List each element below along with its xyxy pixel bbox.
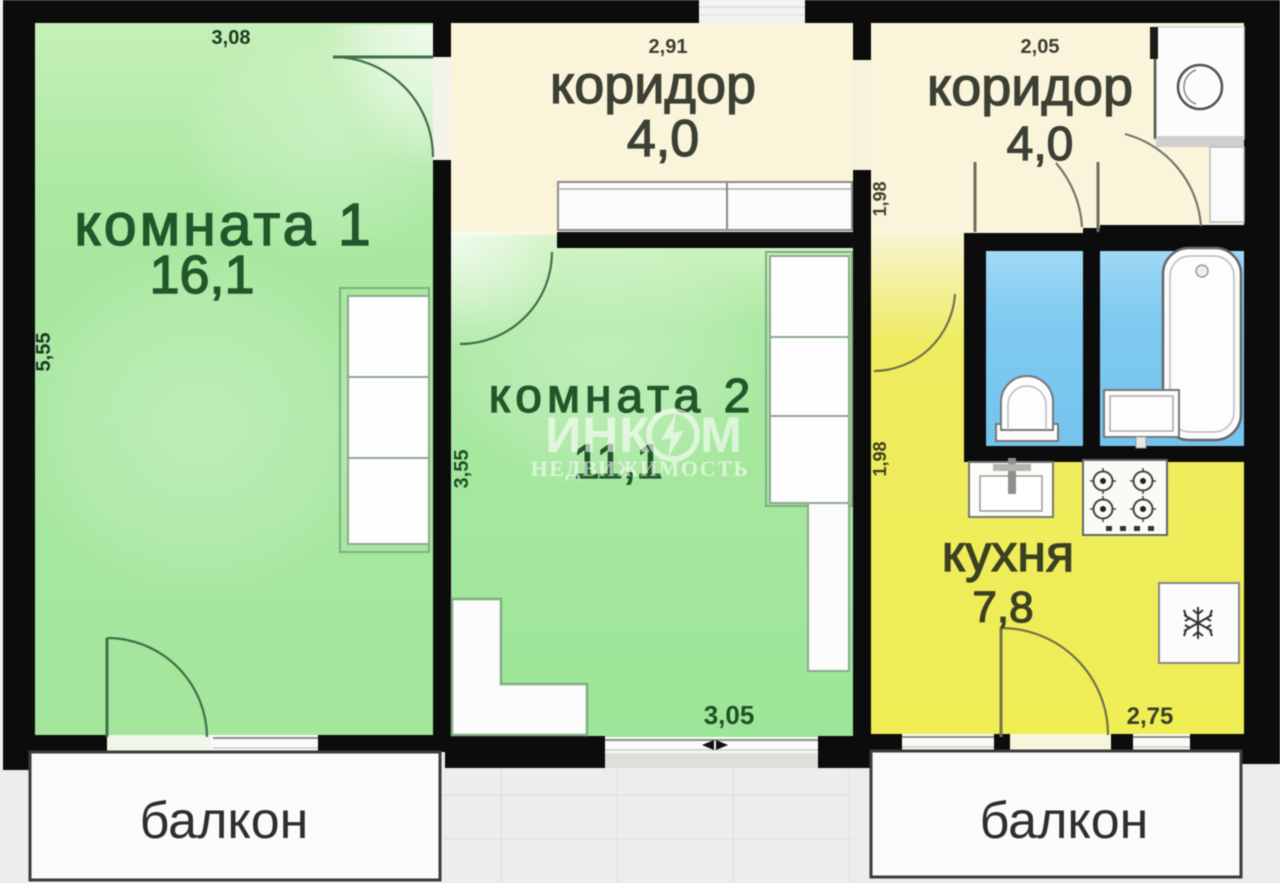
svg-text:2,05: 2,05 bbox=[1021, 36, 1060, 58]
svg-text:5,55: 5,55 bbox=[33, 333, 55, 372]
svg-text:коридор: коридор bbox=[550, 55, 756, 115]
svg-text:3,05: 3,05 bbox=[704, 700, 755, 730]
svg-text:М: М bbox=[700, 407, 742, 463]
svg-text:3,08: 3,08 bbox=[212, 27, 251, 49]
svg-text:балкон: балкон bbox=[140, 792, 309, 850]
svg-text:2,91: 2,91 bbox=[649, 36, 688, 58]
svg-text:1,98: 1,98 bbox=[870, 181, 890, 216]
svg-text:ИНК: ИНК bbox=[545, 407, 651, 463]
svg-text:НЕДВИЖИМОСТЬ: НЕДВИЖИМОСТЬ bbox=[531, 456, 750, 481]
svg-text:коридор: коридор bbox=[927, 57, 1133, 117]
svg-text:4,0: 4,0 bbox=[1007, 118, 1074, 171]
svg-text:1,98: 1,98 bbox=[870, 441, 890, 476]
svg-text:кухня: кухня bbox=[942, 525, 1074, 583]
svg-text:балкон: балкон bbox=[980, 792, 1149, 850]
svg-text:2,75: 2,75 bbox=[1127, 703, 1174, 730]
svg-text:4,0: 4,0 bbox=[627, 110, 699, 168]
svg-text:3,55: 3,55 bbox=[451, 450, 473, 489]
svg-text:16,1: 16,1 bbox=[149, 245, 254, 305]
svg-text:7,8: 7,8 bbox=[972, 583, 1033, 632]
